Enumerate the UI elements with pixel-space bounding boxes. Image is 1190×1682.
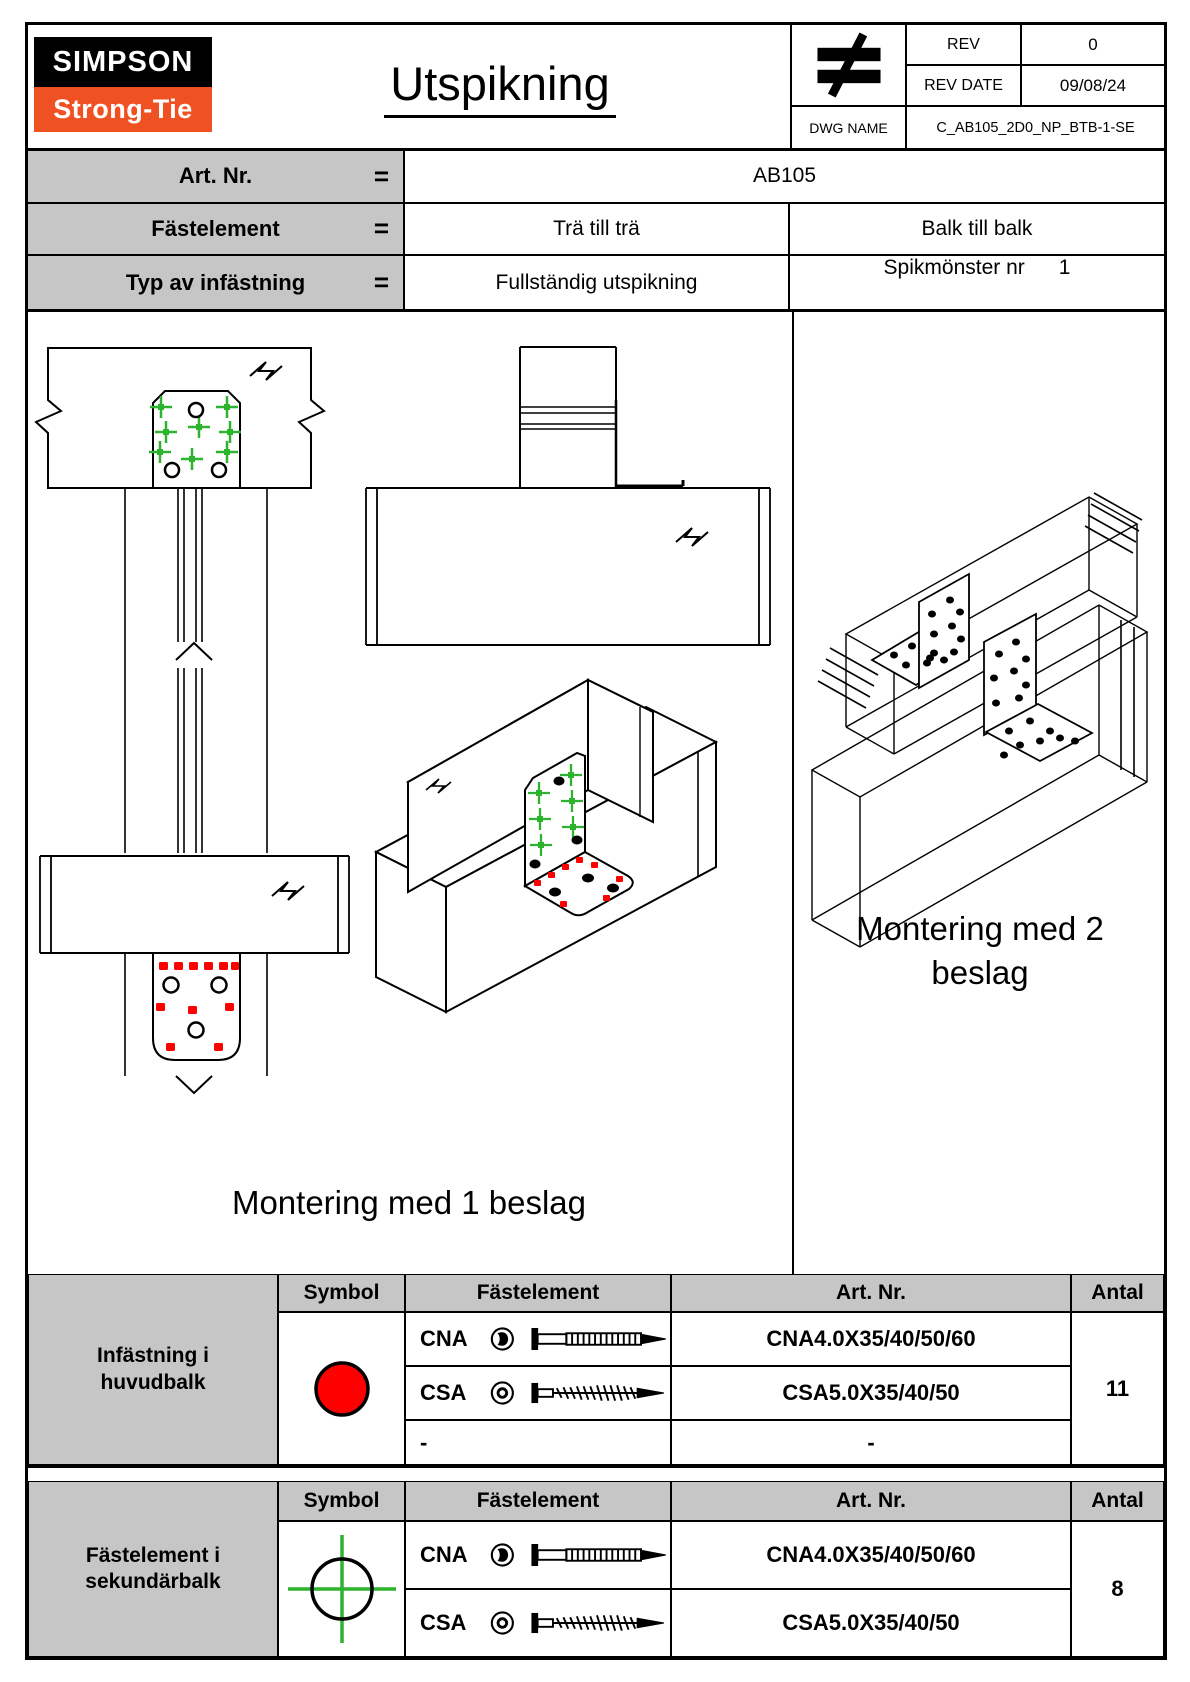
header-symbol: Symbol <box>278 1481 405 1521</box>
typ-label-cell: Typ av infästning = <box>28 256 405 309</box>
bottom-view <box>40 856 349 1093</box>
csa-head-icon <box>488 1608 517 1638</box>
fastener-name: - <box>420 1430 427 1456</box>
spikmonster-number: 1 <box>1059 256 1071 280</box>
huvudbalk-row-label: Infästning i huvudbalk <box>28 1274 278 1465</box>
fastener-name: CNA <box>420 1326 474 1352</box>
title-bar: SIMPSON Strong-Tie Utspikning REV 0 REV … <box>28 25 1164 151</box>
art-nr-label: Art. Nr. <box>179 163 252 189</box>
cna-head-icon <box>488 1540 517 1570</box>
typ-label: Typ av infästning <box>126 270 305 296</box>
caption-one-bracket: Montering med 1 beslag <box>232 1184 586 1221</box>
art-nr-label-cell: Art. Nr. = <box>28 151 405 204</box>
spikmonster-label: Spikmönster nr <box>884 256 1025 280</box>
sekundarbalk-antal: 8 <box>1071 1521 1164 1657</box>
simpson-strongtie-logo: SIMPSON Strong-Tie <box>34 37 212 132</box>
title-block: REV 0 REV DATE 09/08/24 DWG NAME C_AB105… <box>790 25 1164 148</box>
drawing-panel-two-brackets: Montering med 2 beslag <box>792 312 1166 1274</box>
fastener-artnr: CNA4.0X35/40/50/60 <box>671 1521 1071 1589</box>
fastelement-label: Fästelement <box>151 216 279 242</box>
fastelement-value-2: Balk till balk <box>790 204 1164 257</box>
fastener-artnr: CSA5.0X35/40/50 <box>671 1589 1071 1657</box>
sheet-frame: SIMPSON Strong-Tie Utspikning REV 0 REV … <box>25 22 1167 1660</box>
typ-value-1: Fullständig utspikning <box>405 256 790 309</box>
sekundarbalk-symbol-cell <box>278 1521 405 1657</box>
cna-head-icon <box>488 1324 517 1354</box>
rev-date-label: REV DATE <box>905 66 1020 107</box>
logo-strongtie: Strong-Tie <box>34 87 212 132</box>
secondary-beam-lines <box>125 488 267 853</box>
side-view <box>366 347 770 645</box>
art-nr-value: AB105 <box>405 151 1164 204</box>
drawing-panel-one-bracket: Montering med 1 beslag <box>28 312 790 1274</box>
rev-date-value: 09/08/24 <box>1020 66 1164 107</box>
csa-screw-icon <box>530 1610 670 1636</box>
fastener-table-sekundarbalk: Fästelement i sekundärbalk Symbol Fästel… <box>28 1481 1164 1657</box>
fastener-name: CSA <box>420 1380 474 1406</box>
fastener-artnr: CSA5.0X35/40/50 <box>671 1366 1071 1420</box>
fastener-artnr: - <box>671 1420 1071 1465</box>
fastener-table-huvudbalk: Infästning i huvudbalk Symbol Fästelemen… <box>28 1274 1164 1465</box>
csa-screw-icon <box>530 1380 670 1406</box>
fastener-row: CSA <box>405 1366 671 1420</box>
logo-simpson: SIMPSON <box>34 37 212 87</box>
header-antal: Antal <box>1071 1481 1164 1521</box>
rev-label: REV <box>905 25 1020 66</box>
caption-two-brackets-line2: beslag <box>931 954 1028 991</box>
cna-nail-icon <box>530 1542 670 1568</box>
rev-value: 0 <box>1020 25 1164 66</box>
spec-table: Art. Nr. = AB105 Fästelement = Trä till … <box>28 151 1164 312</box>
cna-nail-icon <box>530 1326 670 1352</box>
fastelement-value-1: Trä till trä <box>405 204 790 257</box>
header-fastelement: Fästelement <box>405 1481 671 1521</box>
csa-head-icon <box>488 1378 517 1408</box>
fastener-artnr: CNA4.0X35/40/50/60 <box>671 1312 1071 1366</box>
page-title: Utspikning <box>384 56 615 118</box>
header-artnr: Art. Nr. <box>671 1274 1071 1312</box>
equals-sign: = <box>374 213 389 244</box>
fastener-row: - <box>405 1420 671 1465</box>
header-fastelement: Fästelement <box>405 1274 671 1312</box>
huvudbalk-antal: 11 <box>1071 1312 1164 1465</box>
typ-value-2: Spikmönster nr 1 <box>790 256 1164 309</box>
fastener-name: CNA <box>420 1542 474 1568</box>
dwg-name-label: DWG NAME <box>790 107 905 148</box>
fastelement-label-cell: Fästelement = <box>28 204 405 257</box>
nail-crosshair-markers <box>149 396 241 470</box>
red-circle-symbol <box>307 1354 377 1424</box>
dwg-name-value: C_AB105_2D0_NP_BTB-1-SE <box>905 107 1164 148</box>
drawing-area: Montering med 1 beslag <box>28 312 1164 1277</box>
fastener-row: CNA <box>405 1312 671 1366</box>
header-artnr: Art. Nr. <box>671 1481 1071 1521</box>
header-antal: Antal <box>1071 1274 1164 1312</box>
beam-cut-hatch <box>818 493 1142 708</box>
caption-two-brackets-line1: Montering med 2 <box>856 910 1104 947</box>
isometric-view-one-bracket <box>376 680 716 1012</box>
equals-sign: = <box>374 161 389 192</box>
green-crosshair-symbol <box>282 1529 402 1649</box>
isometric-view-two-brackets <box>812 493 1147 947</box>
fastener-row: CSA <box>405 1589 671 1657</box>
front-view <box>36 348 324 488</box>
huvudbalk-symbol-cell <box>278 1312 405 1465</box>
fastener-row: CNA <box>405 1521 671 1589</box>
sekundarbalk-row-label: Fästelement i sekundärbalk <box>28 1481 278 1657</box>
not-equal-projection-icon <box>790 25 905 107</box>
header-symbol: Symbol <box>278 1274 405 1312</box>
fastener-name: CSA <box>420 1610 474 1636</box>
equals-sign: = <box>374 267 389 298</box>
